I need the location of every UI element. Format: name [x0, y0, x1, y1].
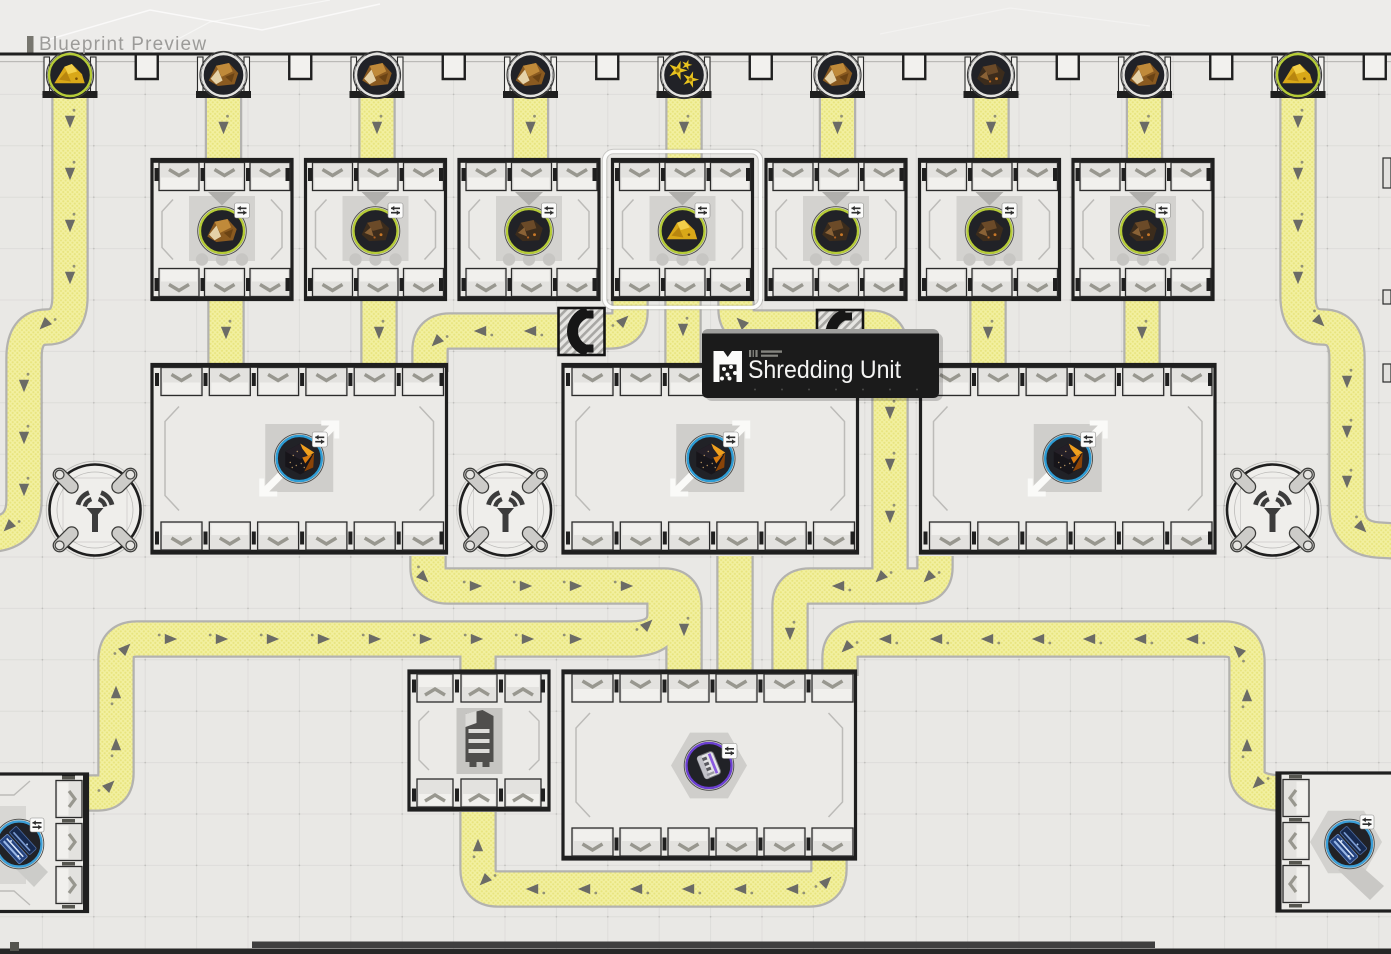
svg-text:Shredding Unit: Shredding Unit [748, 356, 901, 384]
svg-text:Blueprint Preview: Blueprint Preview [39, 34, 207, 55]
